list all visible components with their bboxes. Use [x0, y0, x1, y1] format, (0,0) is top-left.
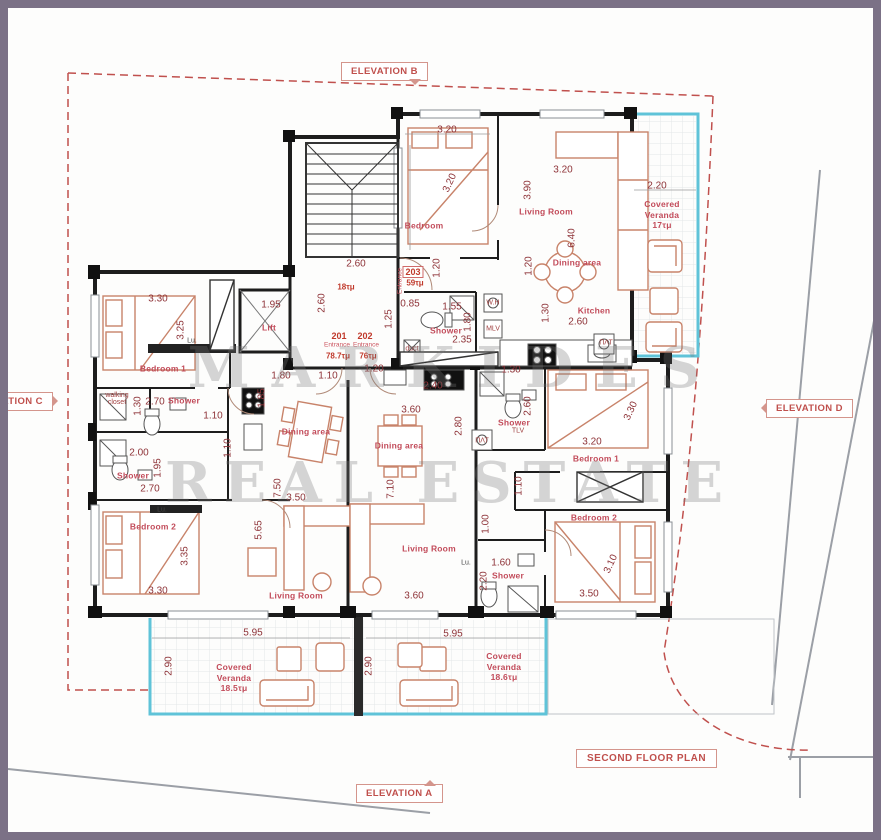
room-label: Bedroom 1 — [140, 364, 186, 375]
dim-label: 5.95 — [243, 628, 262, 639]
dim-label: 3.30 — [148, 294, 167, 305]
dim-label: 2.20 — [479, 571, 490, 590]
appliance-label: ΠΛΤ — [475, 438, 489, 445]
dim-label: 1.25 — [384, 309, 395, 328]
dim-label: 2.00 — [129, 448, 148, 459]
room-label: Covered Veranda 17τμ — [644, 199, 679, 231]
room-label: Lift — [262, 323, 276, 334]
watermark-line-1: MARKIDES — [188, 335, 723, 401]
dim-label: 2.80 — [454, 416, 465, 435]
dim-label: 1.95 — [261, 300, 280, 311]
room-label: Shower — [117, 471, 149, 482]
landing-area-label: 18τμ — [337, 283, 354, 292]
dim-label: 3.60 — [401, 405, 420, 416]
dim-label: 3.50 — [579, 589, 598, 600]
dim-label: 2.20 — [647, 181, 666, 192]
dim-label: 1.95 — [153, 458, 164, 477]
dim-label: 1.20 — [432, 258, 443, 277]
dim-label: 1.30 — [541, 303, 552, 322]
floor-plan-page: 3.20 3.20 3.20 3.90 6.40 2.20 1.20 1.30 … — [0, 0, 881, 840]
room-label: Dining area — [553, 258, 602, 269]
elevation-c-tag: ELEVATION C — [0, 392, 53, 411]
appliance-label: TLV — [512, 428, 524, 435]
staircase — [306, 143, 398, 257]
dim-label: 2.60 — [346, 259, 365, 270]
room-label: Covered Veranda 18.5τμ — [216, 662, 251, 694]
dim-label: 5.95 — [443, 629, 462, 640]
appliance-label: W.H — [486, 300, 499, 307]
appliance-label: MLV — [486, 326, 500, 333]
dim-label: 3.20 — [437, 125, 456, 136]
dim-label: 3.90 — [523, 180, 534, 199]
dim-label: 2.70 — [140, 484, 159, 495]
plan-title-tag: SECOND FLOOR PLAN — [576, 749, 717, 768]
dim-label: 1.80 — [463, 312, 474, 331]
dim-label: 1.10 — [203, 411, 222, 422]
dim-label: 1.60 — [491, 558, 510, 569]
dim-label: 1.00 — [481, 514, 492, 533]
dim-label: 2.90 — [364, 656, 375, 675]
unit-entrance-label: Entrance — [397, 268, 404, 294]
dim-label: 2.70 — [145, 397, 164, 408]
dim-label: 3.20 — [553, 165, 572, 176]
room-label: Living Room — [519, 207, 573, 218]
dim-label: 5.65 — [254, 520, 265, 539]
dim-label: 1.55 — [442, 302, 461, 313]
elevation-b-tag: ELEVATION B — [341, 62, 428, 81]
dim-label: 2.90 — [164, 656, 175, 675]
dim-label: 3.20 — [582, 437, 601, 448]
watermark-line-2: REAL ESTATE — [165, 450, 735, 516]
room-label: Living Room — [402, 544, 456, 555]
dim-label: 2.60 — [568, 317, 587, 328]
dim-label: 3.35 — [180, 546, 191, 565]
unit-number: 203 — [402, 266, 423, 278]
dim-label: 6.40 — [567, 228, 578, 247]
elevation-a-tag: ELEVATION A — [356, 784, 443, 803]
room-label: Kitchen — [578, 306, 611, 317]
room-label: Bedroom 2 — [130, 522, 176, 533]
closet-label: Lu. — [461, 560, 471, 567]
dim-label: 3.25 — [176, 320, 187, 339]
room-label: Shower — [492, 571, 524, 582]
dim-label: 1.30 — [133, 396, 144, 415]
dim-label: 1.20 — [524, 256, 535, 275]
room-label: Dining area — [282, 427, 331, 438]
dim-label: 2.60 — [317, 293, 328, 312]
room-label: Covered Veranda 18.6τμ — [486, 651, 521, 683]
room-label: Bedroom — [405, 221, 444, 232]
dim-label: 3.60 — [404, 591, 423, 602]
elevation-d-tag: ELEVATION D — [766, 399, 853, 418]
dim-label: 3.30 — [148, 586, 167, 597]
unit-area: 59τμ — [406, 279, 423, 288]
walkin-closet-label: walking closet — [105, 392, 128, 406]
room-label: Living Room — [269, 591, 323, 602]
dim-label: 0.85 — [400, 299, 419, 310]
